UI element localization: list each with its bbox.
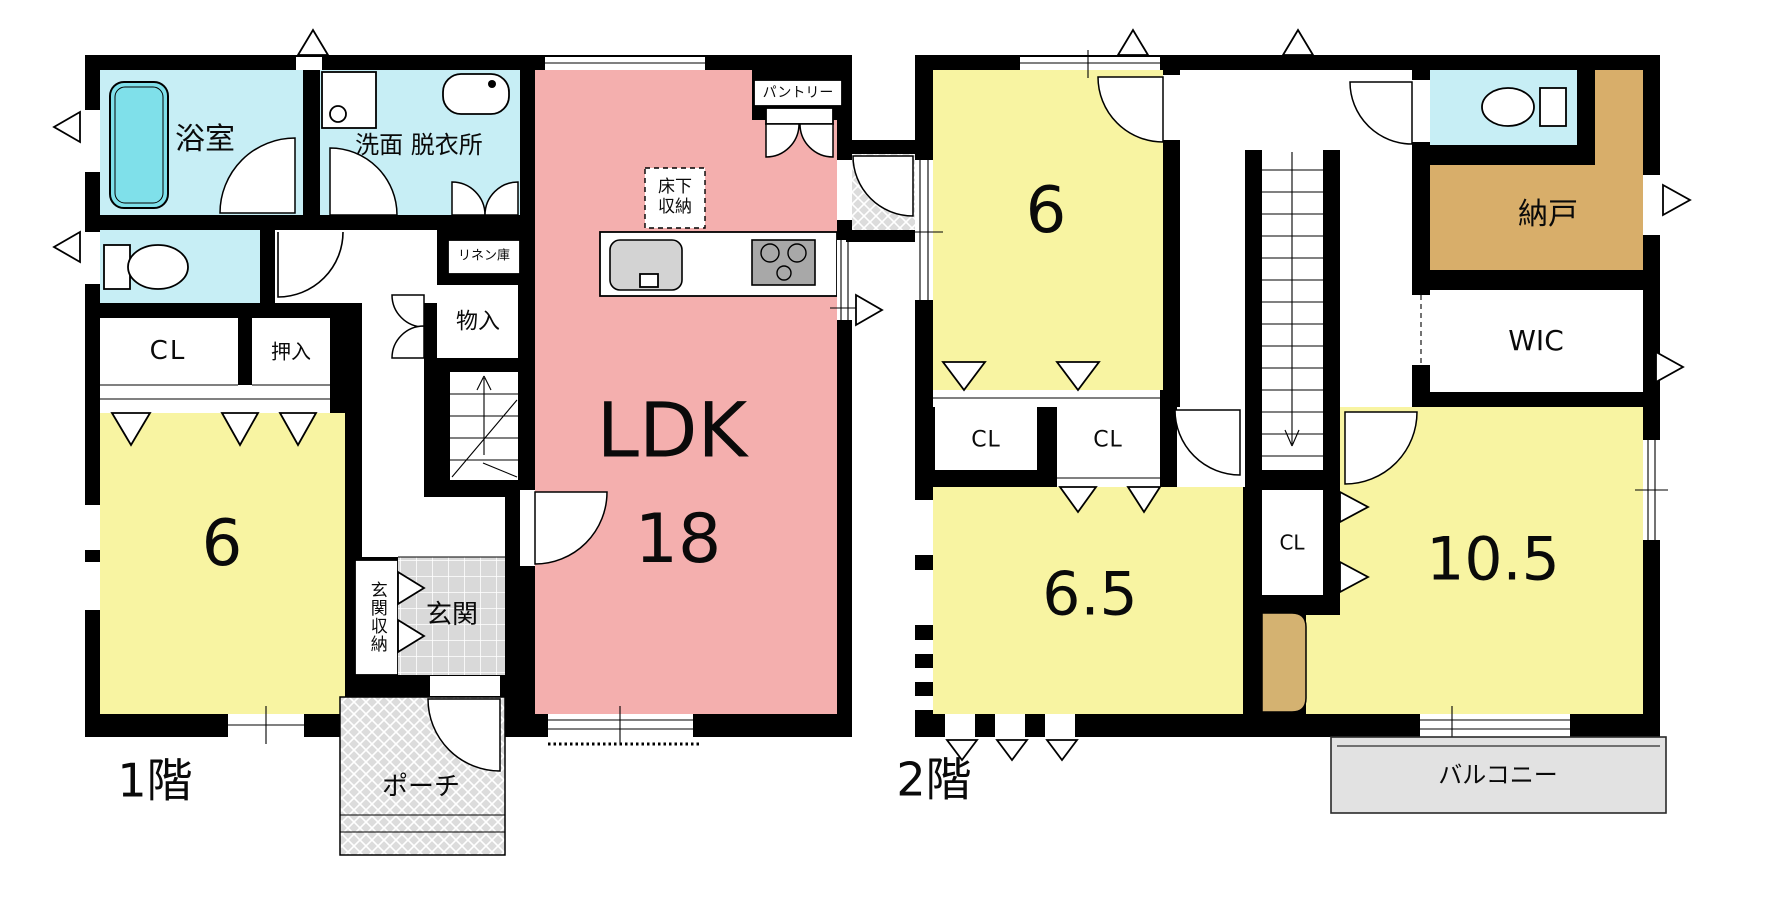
- label-bathroom: 浴室: [175, 123, 235, 158]
- window: [296, 57, 322, 70]
- hallway-2f: [1180, 70, 1245, 407]
- counter-desk: [1262, 613, 1306, 712]
- label-balcony: バルコニー: [1438, 762, 1558, 790]
- vent-glyph: [1656, 352, 1683, 382]
- window: [1643, 175, 1660, 235]
- floor1-title: 1階: [117, 755, 192, 808]
- label-pantry: パントリー: [763, 85, 834, 101]
- vent-glyph: [1118, 30, 1148, 55]
- vent-glyph: [54, 232, 80, 262]
- washbasin: [443, 74, 509, 114]
- label-closet1-2f: CL: [971, 427, 1001, 452]
- label-linen: リネン庫: [458, 250, 510, 265]
- window: [1420, 714, 1570, 737]
- vent-glyph: [54, 112, 80, 142]
- floor-plan: 浴室 洗面 脱衣所 リネン庫 物入 CL 押入 6 LDK 18 床下 収納 パ…: [0, 0, 1768, 901]
- hallway-1f: [275, 230, 437, 303]
- label-porch: ポーチ: [382, 773, 460, 803]
- label-underfloor-line1: 床下: [658, 178, 692, 198]
- label-closet3-2f: CL: [1279, 532, 1304, 555]
- label-underfloor-line2: 収納: [658, 198, 692, 218]
- label-bedroom-size-1f: 6: [202, 508, 243, 582]
- window: [915, 640, 933, 710]
- window: [915, 570, 933, 625]
- label-ldk: LDK: [597, 386, 748, 473]
- label-washroom: 洗面 脱衣所: [355, 132, 483, 160]
- label-bedroom2-2f: 6.5: [1042, 561, 1137, 630]
- window: [945, 714, 975, 737]
- room-storage-2f: [1595, 70, 1643, 165]
- label-closet2-2f: CL: [1093, 427, 1123, 452]
- floor2-title: 2階: [896, 754, 971, 807]
- label-closet-1f: CL: [150, 337, 187, 367]
- window: [85, 505, 100, 550]
- washer-pan: [322, 72, 376, 128]
- window: [915, 500, 933, 555]
- label-bedroom1-2f: 6: [1026, 175, 1067, 249]
- label-wic: WIC: [1508, 325, 1564, 357]
- toilet-fixture-2f: [1482, 88, 1534, 126]
- label-storage-1f: 物入: [456, 309, 500, 334]
- floor2-group: [905, 30, 1690, 813]
- label-storage-room: 納戸: [1518, 198, 1578, 233]
- toilet-fixture-1f: [104, 245, 130, 289]
- window: [85, 110, 100, 172]
- label-entrance-storage: 玄関収納: [366, 581, 386, 653]
- window: [1045, 714, 1075, 737]
- window: [915, 160, 933, 300]
- kitchen-stove: [752, 240, 815, 285]
- bathtub: [110, 82, 168, 208]
- label-oshiire: 押入: [271, 341, 311, 364]
- label-ldk-size: 18: [635, 501, 722, 579]
- window: [85, 232, 100, 284]
- vent-glyph: [856, 295, 882, 325]
- label-bedroom3-2f: 10.5: [1426, 526, 1560, 595]
- label-entrance: 玄関: [426, 601, 478, 631]
- vent-glyph: [298, 30, 328, 55]
- vent-glyph: [1663, 185, 1690, 215]
- vent-glyph: [1283, 30, 1313, 55]
- window: [85, 562, 100, 610]
- window: [995, 714, 1025, 737]
